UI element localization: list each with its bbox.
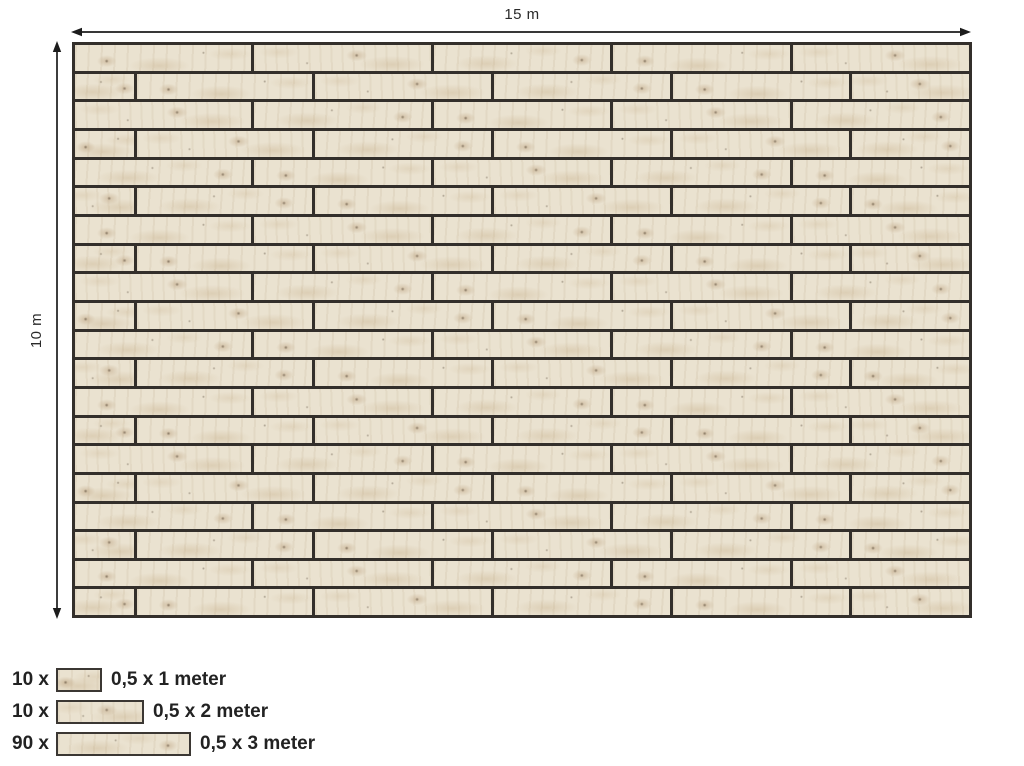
arrowhead-up-icon	[53, 41, 61, 52]
plank-3m	[137, 532, 313, 558]
plank-3m	[434, 45, 610, 71]
legend-item-1m: 10 x 0,5 x 1 meter	[12, 668, 315, 692]
plank-3m	[315, 475, 491, 501]
plank-3m	[137, 418, 313, 444]
plank-swatch-2m-icon	[56, 700, 144, 724]
plank-3m	[434, 389, 610, 415]
plank-3m	[793, 389, 969, 415]
plank-3m	[434, 504, 610, 530]
floor-row	[75, 303, 969, 329]
plank-3m	[75, 160, 251, 186]
floor-row	[75, 389, 969, 415]
legend-count-3m: 90 x	[12, 733, 50, 755]
arrowhead-down-icon	[53, 608, 61, 619]
legend-item-3m: 90 x 0,5 x 3 meter	[12, 732, 315, 756]
legend: 10 x 0,5 x 1 meter 10 x 0,5 x 2 meter 90…	[12, 668, 315, 764]
floor-row	[75, 532, 969, 558]
height-dimension-label: 10 m	[29, 312, 46, 347]
plank-3m	[613, 561, 789, 587]
floor-row	[75, 418, 969, 444]
legend-count-2m: 10 x	[12, 701, 50, 723]
plank-3m	[494, 74, 670, 100]
plank-3m	[254, 389, 430, 415]
plank-3m	[613, 389, 789, 415]
legend-count-1m: 10 x	[12, 669, 50, 691]
plank-3m	[434, 446, 610, 472]
plank-3m	[613, 217, 789, 243]
plank-3m	[315, 131, 491, 157]
floor-row	[75, 446, 969, 472]
plank-3m	[254, 561, 430, 587]
plank-3m	[673, 303, 849, 329]
plank-3m	[494, 418, 670, 444]
plank-3m	[137, 475, 313, 501]
plank-1m	[75, 303, 134, 329]
plank-3m	[613, 102, 789, 128]
floor-row	[75, 188, 969, 214]
plank-3m	[75, 561, 251, 587]
plank-3m	[254, 504, 430, 530]
plank-3m	[434, 217, 610, 243]
plank-3m	[613, 45, 789, 71]
floor-row	[75, 475, 969, 501]
plank-3m	[315, 303, 491, 329]
plank-3m	[315, 589, 491, 615]
floor-row	[75, 589, 969, 615]
plank-3m	[494, 246, 670, 272]
plank-3m	[494, 589, 670, 615]
plank-3m	[75, 45, 251, 71]
arrowhead-right-icon	[960, 28, 971, 36]
plank-3m	[434, 561, 610, 587]
plank-1m	[75, 246, 134, 272]
plank-3m	[137, 303, 313, 329]
plank-3m	[673, 475, 849, 501]
legend-label-1m: 0,5 x 1 meter	[111, 669, 226, 691]
floor-row	[75, 504, 969, 530]
plank-3m	[315, 418, 491, 444]
height-dimension-label-wrap: 10 m	[24, 42, 50, 618]
plank-2m	[852, 418, 969, 444]
plank-3m	[494, 360, 670, 386]
floor-row	[75, 160, 969, 186]
plank-3m	[673, 589, 849, 615]
plank-3m	[793, 332, 969, 358]
plank-2m	[852, 589, 969, 615]
legend-label-2m: 0,5 x 2 meter	[153, 701, 268, 723]
plank-3m	[673, 532, 849, 558]
plank-3m	[494, 475, 670, 501]
plank-3m	[613, 332, 789, 358]
plank-2m	[852, 303, 969, 329]
floor-row	[75, 102, 969, 128]
plank-3m	[315, 246, 491, 272]
plank-3m	[793, 561, 969, 587]
plank-3m	[434, 332, 610, 358]
plank-3m	[254, 102, 430, 128]
plank-3m	[793, 504, 969, 530]
plank-1m	[75, 589, 134, 615]
arrowhead-left-icon	[71, 28, 82, 36]
width-dimension-label: 15 m	[72, 6, 972, 23]
plank-3m	[793, 102, 969, 128]
plank-3m	[793, 45, 969, 71]
plank-3m	[673, 360, 849, 386]
plank-3m	[793, 446, 969, 472]
plank-3m	[315, 532, 491, 558]
plank-3m	[315, 360, 491, 386]
plank-3m	[254, 45, 430, 71]
plank-3m	[673, 188, 849, 214]
height-dimension-arrow	[50, 41, 64, 619]
plank-3m	[613, 504, 789, 530]
plank-1m	[75, 418, 134, 444]
plank-2m	[852, 188, 969, 214]
floor-row	[75, 332, 969, 358]
plank-3m	[673, 418, 849, 444]
plank-1m	[75, 131, 134, 157]
plank-3m	[793, 274, 969, 300]
plank-3m	[137, 74, 313, 100]
plank-3m	[75, 274, 251, 300]
plank-2m	[852, 246, 969, 272]
plank-3m	[254, 274, 430, 300]
floor-row	[75, 274, 969, 300]
plank-1m	[75, 188, 134, 214]
plank-3m	[613, 274, 789, 300]
plank-3m	[434, 102, 610, 128]
plank-3m	[75, 389, 251, 415]
legend-item-2m: 10 x 0,5 x 2 meter	[12, 700, 315, 724]
floor-row	[75, 45, 969, 71]
plank-3m	[673, 74, 849, 100]
plank-3m	[75, 102, 251, 128]
plank-2m	[852, 131, 969, 157]
floor-row	[75, 217, 969, 243]
floor-row	[75, 131, 969, 157]
legend-label-3m: 0,5 x 3 meter	[200, 733, 315, 755]
floor	[72, 42, 972, 618]
plank-3m	[137, 360, 313, 386]
floor-row	[75, 561, 969, 587]
plank-3m	[315, 188, 491, 214]
plank-3m	[613, 160, 789, 186]
plank-3m	[434, 274, 610, 300]
plank-3m	[494, 131, 670, 157]
plank-3m	[75, 446, 251, 472]
plank-3m	[254, 332, 430, 358]
plank-3m	[254, 160, 430, 186]
plank-3m	[613, 446, 789, 472]
plank-3m	[254, 446, 430, 472]
plank-3m	[75, 217, 251, 243]
plank-3m	[494, 303, 670, 329]
plank-3m	[75, 504, 251, 530]
plank-3m	[137, 131, 313, 157]
plank-3m	[254, 217, 430, 243]
plank-3m	[793, 217, 969, 243]
plank-2m	[852, 360, 969, 386]
plank-1m	[75, 532, 134, 558]
plank-swatch-1m-icon	[56, 668, 102, 692]
plank-3m	[315, 74, 491, 100]
page: 15 m 10 m 10 x 0,5 x 1 meter 10 x 0,5 x …	[0, 0, 1024, 766]
plank-3m	[434, 160, 610, 186]
plank-2m	[852, 74, 969, 100]
width-dimension-arrow	[71, 25, 971, 39]
plank-3m	[75, 332, 251, 358]
plank-3m	[137, 188, 313, 214]
plank-3m	[494, 188, 670, 214]
plank-3m	[673, 131, 849, 157]
floor-row	[75, 360, 969, 386]
plank-2m	[852, 475, 969, 501]
plank-swatch-3m-icon	[56, 732, 191, 756]
plank-3m	[137, 246, 313, 272]
plank-2m	[852, 532, 969, 558]
plank-3m	[137, 589, 313, 615]
floor-row	[75, 74, 969, 100]
plank-1m	[75, 360, 134, 386]
plank-3m	[494, 532, 670, 558]
floor-row	[75, 246, 969, 272]
plank-1m	[75, 74, 134, 100]
plank-1m	[75, 475, 134, 501]
plank-3m	[673, 246, 849, 272]
plank-3m	[793, 160, 969, 186]
